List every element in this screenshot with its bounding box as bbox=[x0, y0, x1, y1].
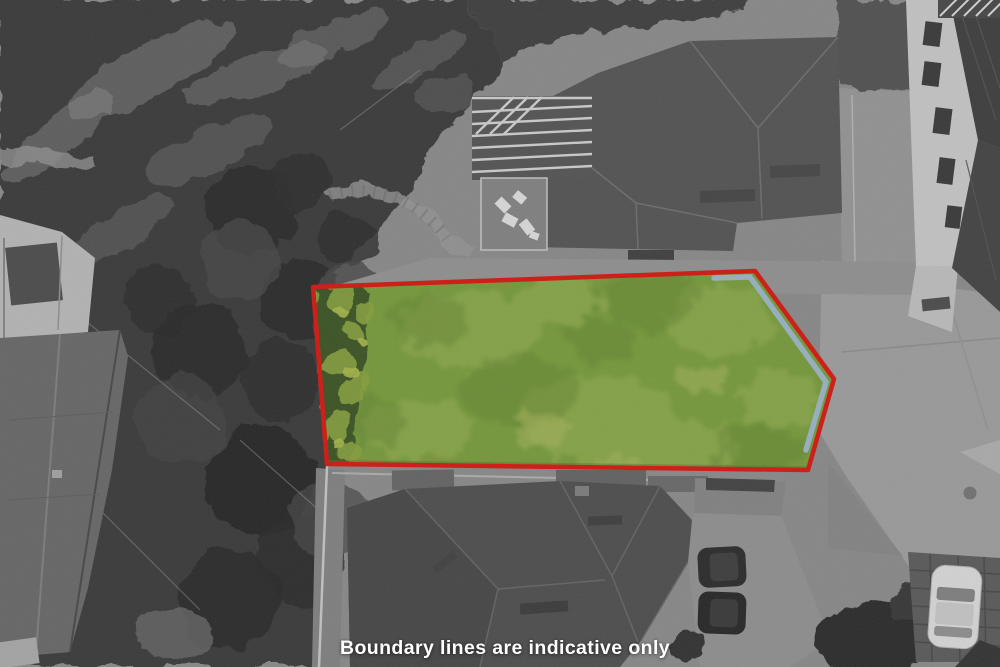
boundary-disclaimer: Boundary lines are indicative only bbox=[340, 637, 670, 660]
scene bbox=[0, 0, 1000, 667]
aerial-photo: Boundary lines are indicative only bbox=[0, 0, 1000, 667]
film-grain bbox=[0, 0, 1000, 667]
